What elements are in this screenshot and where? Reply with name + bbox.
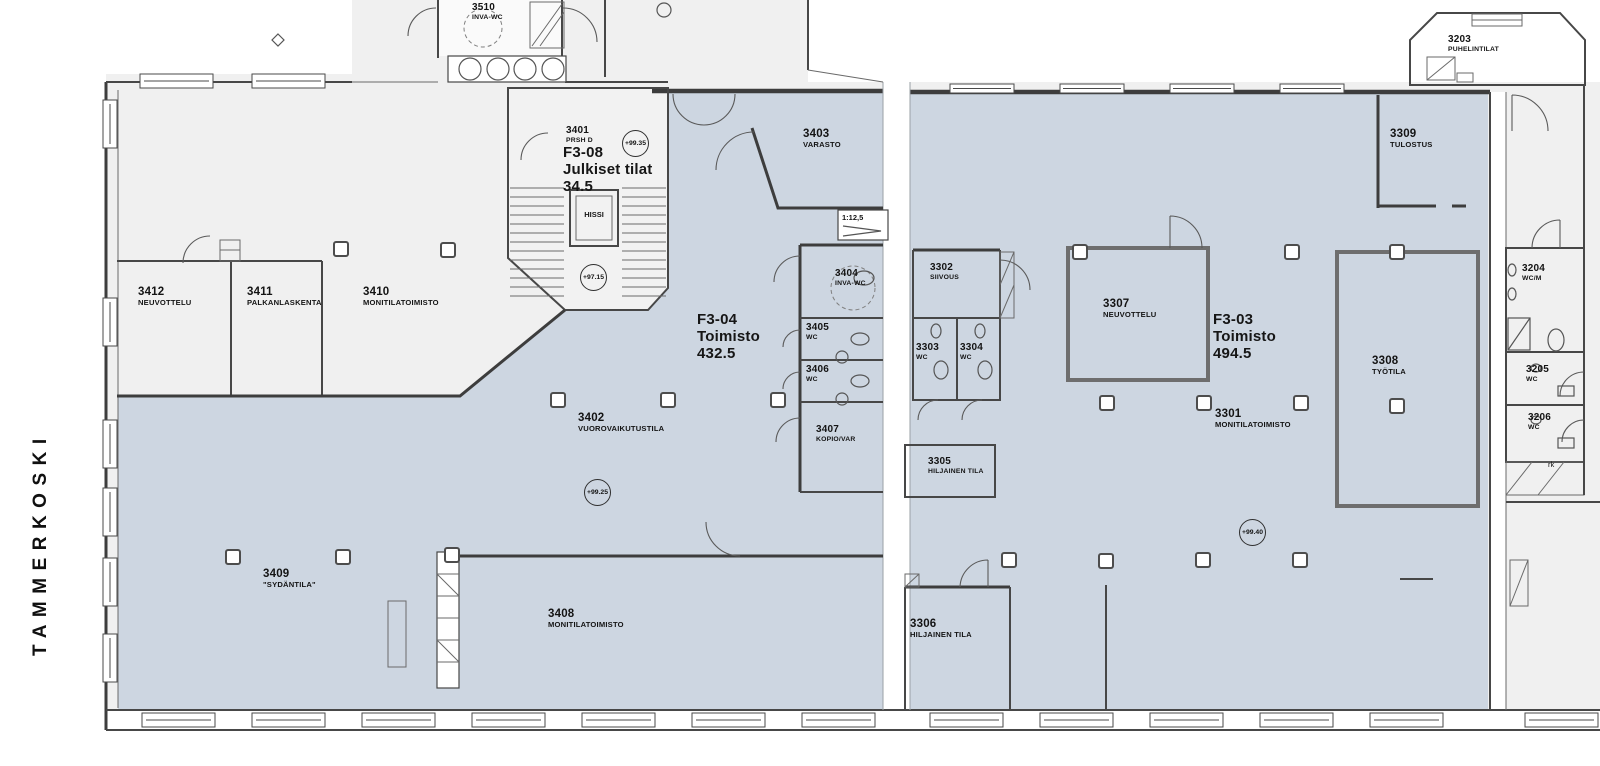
- room-number: 3203: [1448, 34, 1499, 46]
- room-label-3405: 3405 WC: [806, 322, 829, 341]
- room-name: WC: [806, 376, 829, 384]
- misc-label-rk: rk: [1548, 460, 1554, 469]
- zone-area: 34.5: [563, 178, 653, 195]
- room-label-3307: 3307 NEUVOTTELU: [1103, 298, 1156, 320]
- floorplan-linework: [0, 0, 1600, 766]
- room-label-3304: 3304 WC: [960, 342, 983, 361]
- room-name: WC: [1528, 424, 1551, 432]
- room-number: 3204: [1522, 263, 1545, 275]
- level-marker-upper: +99.35: [622, 130, 649, 157]
- ramp-slope-label: 1:12,5: [842, 213, 863, 222]
- zone-label-f3-03: F3-03 Toimisto 494.5: [1213, 311, 1276, 362]
- room-label-3410: 3410 MONITILATOIMISTO: [363, 286, 439, 308]
- level-marker-lower: +97.15: [580, 264, 607, 291]
- room-name: WC/M: [1522, 275, 1545, 283]
- zone-name: Toimisto: [1213, 328, 1276, 345]
- room-number: 3510: [472, 2, 503, 14]
- level-marker-f3-04: +99.25: [584, 479, 611, 506]
- zone-area: 494.5: [1213, 345, 1276, 362]
- room-label-3308: 3308 TYÖTILA: [1372, 355, 1406, 377]
- room-name: WC: [806, 334, 829, 342]
- room-number: 3302: [930, 262, 959, 274]
- elevator-label: HISSI: [570, 210, 618, 219]
- room-label-3402: 3402 VUOROVAIKUTUSTILA: [578, 412, 664, 434]
- room-name: PUHELINTILAT: [1448, 46, 1499, 54]
- room-number: 3304: [960, 342, 983, 354]
- room-label-3407: 3407 KOPIO/VAR: [816, 424, 855, 443]
- room-name: HILJAINEN TILA: [928, 468, 984, 476]
- room-number: 3405: [806, 322, 829, 334]
- room-number: 3205: [1526, 364, 1549, 376]
- room-name: WC: [960, 354, 983, 362]
- room-name: INVA-WC: [835, 280, 866, 288]
- room-name: NEUVOTTELU: [138, 299, 191, 308]
- zone-code: F3-04: [697, 311, 760, 328]
- room-name: HILJAINEN TILA: [910, 631, 972, 640]
- room-number: 3305: [928, 456, 984, 468]
- room-name: KOPIO/VAR: [816, 436, 855, 444]
- room-label-3309: 3309 TULOSTUS: [1390, 128, 1433, 150]
- room-label-3408: 3408 MONITILATOIMISTO: [548, 608, 624, 630]
- room-label-3403: 3403 VARASTO: [803, 128, 841, 150]
- room-label-3305: 3305 HILJAINEN TILA: [928, 456, 984, 475]
- room-label-3404: 3404 INVA-WC: [835, 268, 866, 287]
- room-number: 3206: [1528, 412, 1551, 424]
- room-name: MONITILATOIMISTO: [548, 621, 624, 630]
- zone-name: Julkiset tilat: [563, 161, 653, 178]
- room-name: WC: [916, 354, 939, 362]
- zone-code: F3-03: [1213, 311, 1276, 328]
- room-name: VUOROVAIKUTUSTILA: [578, 425, 664, 434]
- room-name: INVA-WC: [472, 14, 503, 22]
- room-label-3306: 3306 HILJAINEN TILA: [910, 618, 972, 640]
- room-label-3302: 3302 SIIVOUS: [930, 262, 959, 281]
- room-label-3401: 3401 PRSH D: [566, 125, 593, 144]
- room-label-3204: 3204 WC/M: [1522, 263, 1545, 282]
- room-label-3510: 3510 INVA-WC: [472, 2, 503, 21]
- room-name: WC: [1526, 376, 1549, 384]
- room-name: TULOSTUS: [1390, 141, 1433, 150]
- room-number: 3407: [816, 424, 855, 436]
- room-label-3411: 3411 PALKANLASKENTA: [247, 286, 322, 308]
- room-label-3412: 3412 NEUVOTTELU: [138, 286, 191, 308]
- room-label-3303: 3303 WC: [916, 342, 939, 361]
- room-label-3301: 3301 MONITILATOIMISTO: [1215, 408, 1291, 430]
- room-name: MONITILATOIMISTO: [363, 299, 439, 308]
- room-number: 3406: [806, 364, 829, 376]
- room-name: MONITILATOIMISTO: [1215, 421, 1291, 430]
- floor-plan: TAMMERKOSKI 3510 INVA-WC 3401 PRSH D F3-…: [0, 0, 1600, 766]
- room-label-3203: 3203 PUHELINTILAT: [1448, 34, 1499, 53]
- room-number: 3404: [835, 268, 866, 280]
- room-label-3406: 3406 WC: [806, 364, 829, 383]
- room-name: PALKANLASKENTA: [247, 299, 322, 308]
- waterfront-label: TAMMERKOSKI: [30, 431, 52, 656]
- level-marker-f3-03: +99.40: [1239, 519, 1266, 546]
- zone-area: 432.5: [697, 345, 760, 362]
- room-name: SIIVOUS: [930, 274, 959, 282]
- room-label-3206: 3206 WC: [1528, 412, 1551, 431]
- zone-label-f3-04: F3-04 Toimisto 432.5: [697, 311, 760, 362]
- room-number: 3401: [566, 125, 593, 137]
- room-label-3205: 3205 WC: [1526, 364, 1549, 383]
- room-name: VARASTO: [803, 141, 841, 150]
- room-name: "SYDÄNTILA": [263, 581, 316, 590]
- room-name: NEUVOTTELU: [1103, 311, 1156, 320]
- zone-name: Toimisto: [697, 328, 760, 345]
- room-name: TYÖTILA: [1372, 368, 1406, 377]
- room-label-3409: 3409 "SYDÄNTILA": [263, 568, 316, 590]
- room-number: 3303: [916, 342, 939, 354]
